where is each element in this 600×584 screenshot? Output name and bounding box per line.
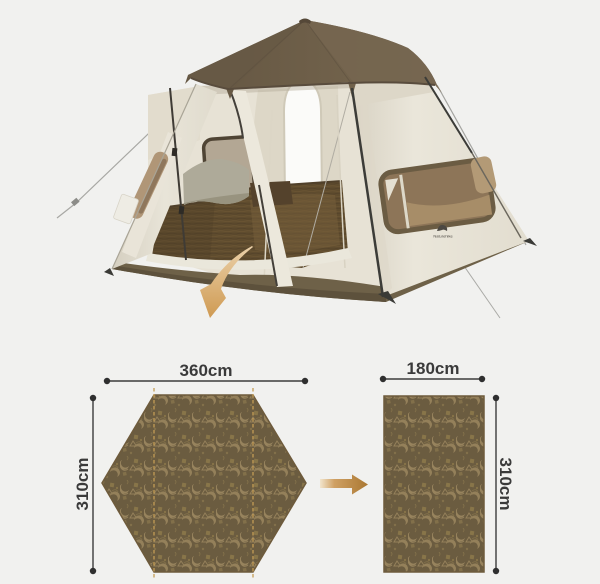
svg-text:310cm: 310cm	[496, 458, 515, 511]
svg-text:180cm: 180cm	[407, 359, 460, 378]
svg-text:310cm: 310cm	[73, 458, 92, 511]
svg-text:360cm: 360cm	[180, 361, 233, 380]
svg-text:Naturehike: Naturehike	[433, 234, 453, 239]
